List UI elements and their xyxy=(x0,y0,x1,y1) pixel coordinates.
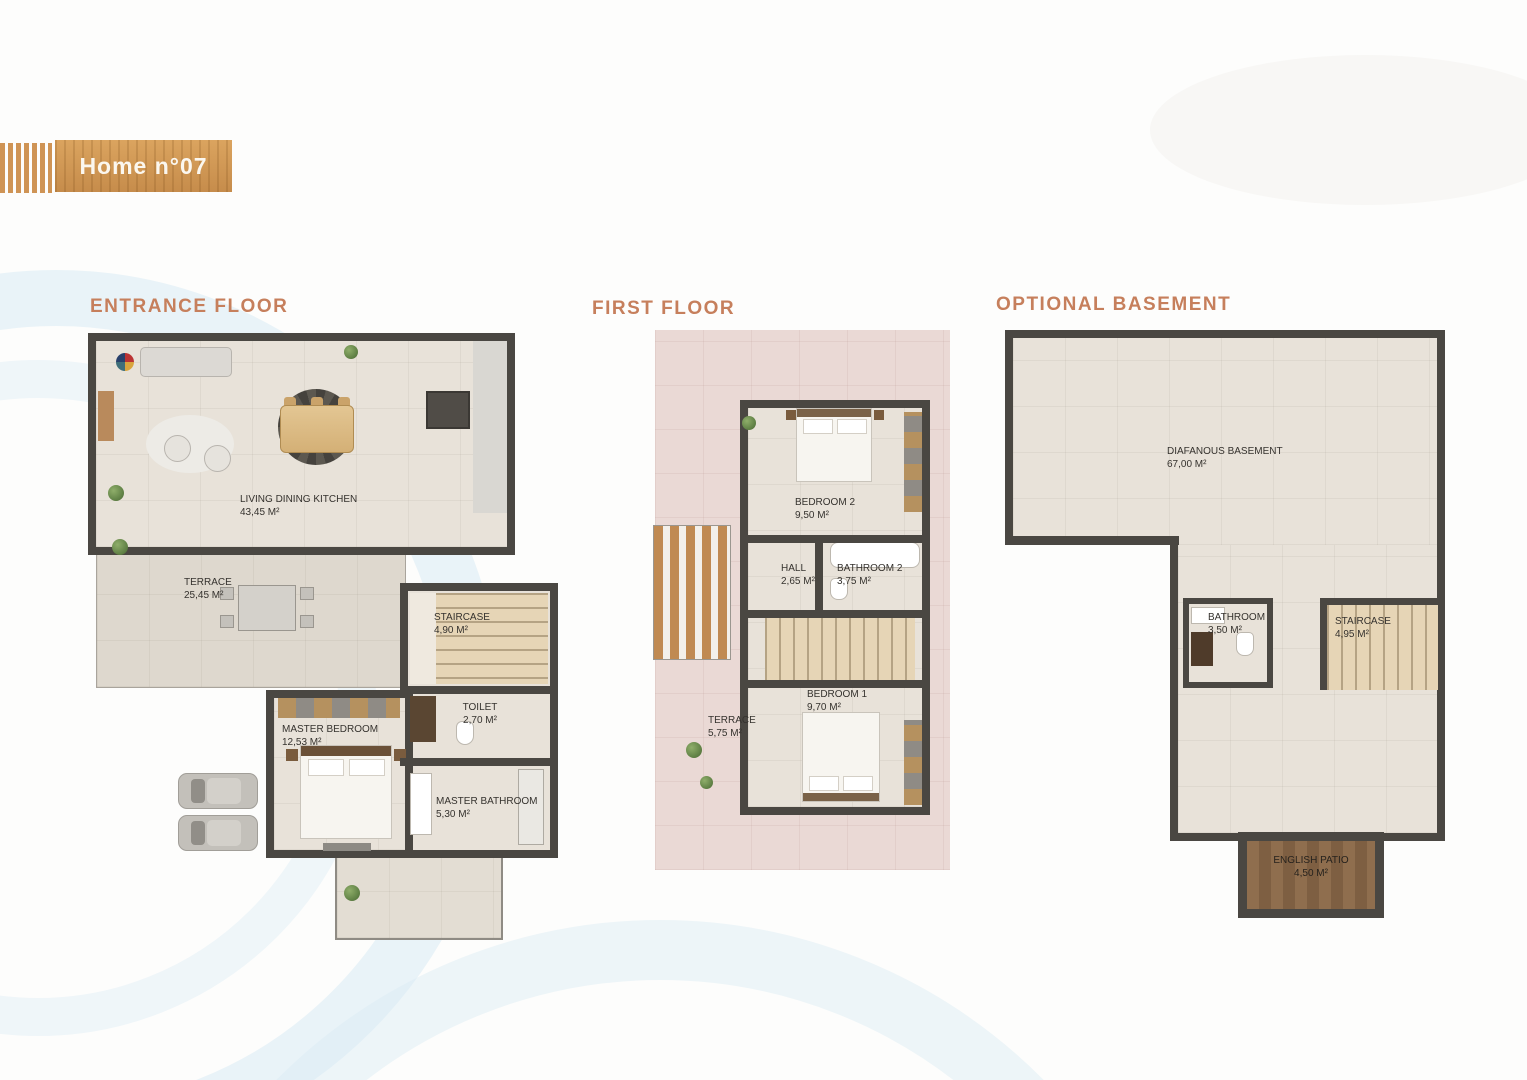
pergola xyxy=(653,525,731,660)
room-label-english-patio: ENGLISH PATIO 4,50 M² xyxy=(1252,854,1370,880)
wall-hall-bathroom2 xyxy=(815,535,823,618)
car-windshield xyxy=(191,779,205,803)
toilet-vanity xyxy=(410,696,436,742)
room-area: 2,70 M² xyxy=(463,714,497,727)
room-area: 4,95 M² xyxy=(1335,628,1391,641)
room-name: STAIRCASE xyxy=(1335,615,1391,628)
room-label-diafanous-basement: DIAFANOUS BASEMENT 67,00 M² xyxy=(1167,445,1283,471)
title-optional-basement: OPTIONAL BASEMENT xyxy=(996,294,1231,316)
nightstand xyxy=(286,749,298,761)
wall-basement-step xyxy=(1005,536,1179,545)
title-entrance-floor: ENTRANCE FLOOR xyxy=(90,296,288,318)
room-name: DIAFANOUS BASEMENT xyxy=(1167,445,1283,458)
nightstand xyxy=(874,410,884,420)
room-label-toilet: TOILET 2,70 M² xyxy=(440,701,520,727)
wardrobe xyxy=(278,698,400,718)
room-area: 2,65 M² xyxy=(781,575,815,588)
room-name: MASTER BATHROOM xyxy=(436,795,537,808)
title-first-floor: FIRST FLOOR xyxy=(592,298,735,320)
room-label-basement-staircase: STAIRCASE 4,95 M² xyxy=(1335,615,1391,641)
room-area: 9,70 M² xyxy=(807,701,867,714)
room-name: BATHROOM 2 xyxy=(837,562,902,575)
room-name: HALL xyxy=(781,562,815,575)
room-label-master-bedroom: MASTER BEDROOM 12,53 M² xyxy=(282,723,378,749)
room-area: 67,00 M² xyxy=(1167,458,1283,471)
room-area: 5,75 M² xyxy=(708,727,756,740)
room-label-staircase: STAIRCASE 4,90 M² xyxy=(434,611,490,637)
sofa xyxy=(140,347,232,377)
room-area: 4,50 M² xyxy=(1294,867,1328,880)
floor-plan-basement: DIAFANOUS BASEMENT 67,00 M² BATHROOM 3,5… xyxy=(1000,330,1450,935)
wall-staircase-toilet xyxy=(400,686,558,694)
armchair xyxy=(204,445,231,472)
bed-bedroom1 xyxy=(802,712,880,802)
bed-bedroom2 xyxy=(796,408,872,482)
wall-toilet-bathroom xyxy=(400,758,558,766)
room-name: BEDROOM 1 xyxy=(807,688,867,701)
terrace-chair xyxy=(300,587,314,600)
staircase-treads xyxy=(765,618,915,680)
stair-landing xyxy=(410,593,436,684)
room-area: 3,50 M² xyxy=(1208,624,1265,637)
room-area: 43,45 M² xyxy=(240,506,357,519)
plant-icon xyxy=(700,776,713,789)
room-name: TERRACE xyxy=(184,576,232,589)
room-name: LIVING DINING KITCHEN xyxy=(240,493,357,506)
home-number-badge: Home n°07 xyxy=(55,140,232,192)
background-blob xyxy=(1150,55,1527,205)
pillow xyxy=(308,759,344,776)
pillow xyxy=(809,776,839,791)
room-label-hall: HALL 2,65 M² xyxy=(781,562,815,588)
pillow xyxy=(843,776,873,791)
room-label-terrace: TERRACE 25,45 M² xyxy=(184,576,232,602)
plant-icon xyxy=(344,345,358,359)
rear-porch xyxy=(335,858,503,940)
plant-icon xyxy=(112,539,128,555)
pillow xyxy=(837,419,867,434)
bathroom-vanity xyxy=(410,773,432,835)
floor-plan-first: BEDROOM 2 9,50 M² HALL 2,65 M² BATHROOM … xyxy=(590,330,955,875)
bathroom-vanity xyxy=(1191,632,1213,666)
room-name: MASTER BEDROOM xyxy=(282,723,378,736)
plant-icon xyxy=(742,416,756,430)
room-name: ENGLISH PATIO xyxy=(1273,854,1348,867)
kitchen-island xyxy=(426,391,470,429)
wardrobe xyxy=(904,720,922,805)
room-area: 5,30 M² xyxy=(436,808,537,821)
staircase-treads xyxy=(1320,598,1438,690)
terrace-table xyxy=(238,585,296,631)
terrace-chair xyxy=(220,615,234,628)
wall-staircase-bedroom1 xyxy=(740,680,930,688)
headboard xyxy=(803,793,879,801)
car-windshield xyxy=(191,821,205,845)
room-label-terrace-first: TERRACE 5,75 M² xyxy=(708,714,756,740)
plant-icon xyxy=(108,485,124,501)
car-roof xyxy=(207,820,241,846)
car xyxy=(178,815,258,851)
car xyxy=(178,773,258,809)
car-roof xyxy=(207,778,241,804)
armchair xyxy=(164,435,191,462)
room-name: BEDROOM 2 xyxy=(795,496,855,509)
basement-lower-area xyxy=(1170,545,1445,841)
room-label-bathroom2: BATHROOM 2 3,75 M² xyxy=(837,562,902,588)
headboard xyxy=(797,409,871,417)
room-area: 3,75 M² xyxy=(837,575,902,588)
home-number-label: Home n°07 xyxy=(79,153,207,180)
plant-icon xyxy=(344,885,360,901)
brochure-page: Home n°07 ENTRANCE FLOOR FIRST FLOOR OPT… xyxy=(0,0,1527,1080)
room-area: 4,90 M² xyxy=(434,624,490,637)
wall-bedroom2-hall xyxy=(740,535,930,543)
bed-bench xyxy=(323,843,371,851)
bed-master xyxy=(300,745,392,839)
room-label-living: LIVING DINING KITCHEN 43,45 M² xyxy=(240,493,357,519)
room-area: 9,50 M² xyxy=(795,509,855,522)
dining-table xyxy=(280,405,354,453)
room-name: BATHROOM xyxy=(1208,611,1265,624)
room-label-bedroom2: BEDROOM 2 9,50 M² xyxy=(795,496,855,522)
pillow xyxy=(803,419,833,434)
wardrobe xyxy=(904,412,922,512)
pillow xyxy=(349,759,385,776)
room-label-master-bathroom: MASTER BATHROOM 5,30 M² xyxy=(436,795,537,821)
staircase-treads xyxy=(410,593,548,684)
room-name: STAIRCASE xyxy=(434,611,490,624)
room-area: 25,45 M² xyxy=(184,589,232,602)
terrace-chair xyxy=(300,615,314,628)
wall-art xyxy=(116,353,134,371)
room-label-bedroom1: BEDROOM 1 9,70 M² xyxy=(807,688,867,714)
plant-icon xyxy=(686,742,702,758)
room-label-basement-bathroom: BATHROOM 3,50 M² xyxy=(1208,611,1265,637)
room-name: TOILET xyxy=(463,701,498,714)
nightstand xyxy=(786,410,796,420)
wall-hall-staircase xyxy=(740,610,930,618)
kitchen-counter xyxy=(473,341,507,513)
console-table xyxy=(98,391,114,441)
floor-plan-entrance: LIVING DINING KITCHEN 43,45 M² TERRACE 2… xyxy=(88,333,558,943)
basement-upper-area xyxy=(1005,330,1445,545)
room-name: TERRACE xyxy=(708,714,756,727)
logo-stripes xyxy=(0,143,52,193)
room-area: 12,53 M² xyxy=(282,736,378,749)
